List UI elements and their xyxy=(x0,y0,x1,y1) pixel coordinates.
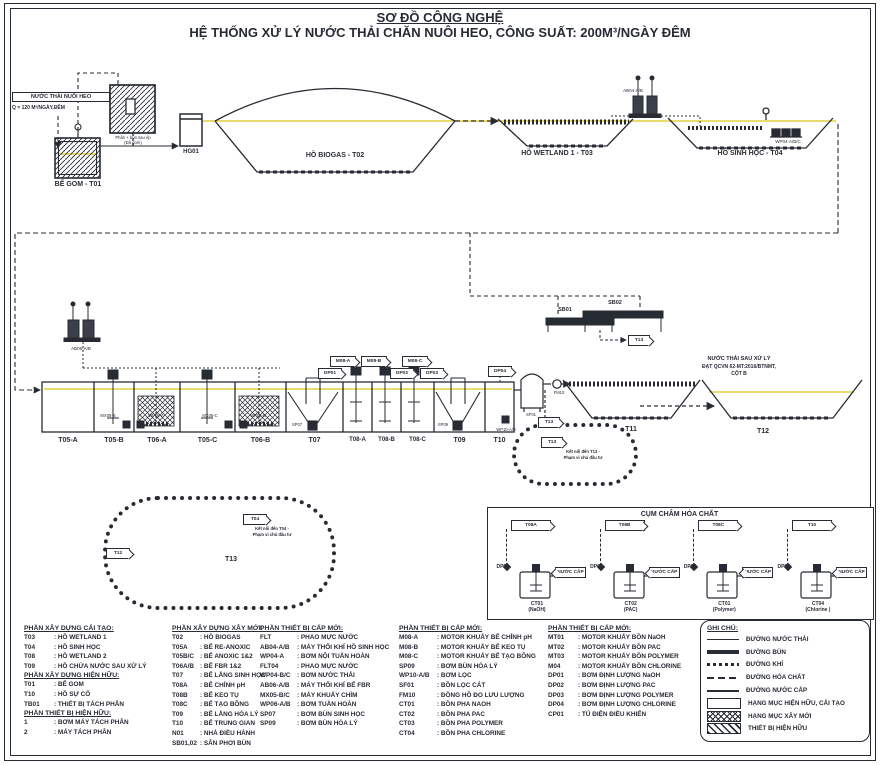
legend-key-row: THIẾT BỊ HIỆN HỮU xyxy=(707,723,863,736)
legend-key-row: ĐƯỜNG NƯỚC CẤP xyxy=(707,684,863,697)
water-supply-flag: NƯỚC CẤP xyxy=(836,567,867,578)
legend-row: MT03: MOTOR KHUẤY BỒN POLYMER xyxy=(548,652,698,662)
t13-note-2: Phạm vi chủ đầu tư xyxy=(232,533,312,538)
legend-row: M08-A: MOTOR KHUẤY BỂ CHỈNH pH xyxy=(399,633,546,643)
tank-label-t06a: T06-A xyxy=(134,437,180,445)
legend-key-row: HẠNG MỤC HIỆN HỮU, CẢI TẠO xyxy=(707,697,863,710)
legend-row: MT02: MOTOR KHUẤY BỒN PAC xyxy=(548,643,698,653)
legend-row: T08C: BỂ TẠO BÔNG xyxy=(172,700,258,710)
legend-column-5: PHẦN THIẾT BỊ CẤP MỚI: MT01: MOTOR KHUẤY… xyxy=(548,624,698,719)
sinh-hoc-pond xyxy=(668,108,833,148)
legend-row: DP04: BƠM ĐỊNH LƯỢNG CHLORINE xyxy=(548,700,698,710)
ab04-blowers xyxy=(610,76,700,126)
water-level-lines xyxy=(44,121,853,553)
chemical-dosing-line xyxy=(600,529,601,566)
t13-outlet-flag: T04 xyxy=(243,514,267,525)
tank-label-t05a: T05-A xyxy=(42,437,94,445)
legend-row: CP01: TỦ ĐIỆN ĐIỀU KHIỂN xyxy=(548,710,698,720)
wp04-label: WP04-A/B/C xyxy=(768,139,808,144)
flag-dp04: DP04 xyxy=(488,366,512,377)
legend-row: MX05-B/C: MÁY KHUẤY CHÌM xyxy=(260,691,396,701)
station-target-flag: T08B xyxy=(605,520,645,531)
t11-label: T11 xyxy=(610,426,652,434)
legend-rows: FLT: PHAO MỰC NƯỚCAB04-A/B: MÁY THỔI KHÍ… xyxy=(260,633,396,729)
legend-rows: T02: HỒ BIOGAST05A: BỂ RE-ANOXICT05B/C: … xyxy=(172,633,258,748)
flag-m08c: M08-C xyxy=(402,356,428,367)
flag-dp03: DP03 xyxy=(420,368,444,379)
process-flow-sheet: SƠ ĐỒ CÔNG NGHỆ HỆ THỐNG XỬ LÝ NƯỚC THẢI… xyxy=(0,0,880,765)
scope-cloud-t13 xyxy=(103,496,336,610)
effluent-note-2: ĐẠT QCVN 62-MT:2016/BTNMT, xyxy=(672,365,806,371)
legend-column-4: PHẦN THIẾT BỊ CẤP MỚI: M08-A: MOTOR KHUẤ… xyxy=(399,624,546,739)
flag-dp01: DP01 xyxy=(318,368,342,379)
flag-m08a: M08-A xyxy=(330,356,356,367)
tank-label-t07: T07 xyxy=(286,437,343,445)
legend-key-row: ĐƯỜNG HÓA CHẤT xyxy=(707,671,863,684)
chem-station: T08A DP01 NƯỚC CẤP CT01 (NaOH) xyxy=(493,520,585,616)
legend-swatch xyxy=(707,698,741,709)
legend-rows: MT01: MOTOR KHUẤY BỒN NaOHMT02: MOTOR KH… xyxy=(548,633,698,719)
legend-key-row: ĐƯỜNG KHÍ xyxy=(707,659,863,672)
legend-row: WP10-A/B: BƠM LỌC xyxy=(399,671,546,681)
legend-row: T08A: BỂ CHỈNH pH xyxy=(172,681,258,691)
chemical-stations: T08A DP01 NƯỚC CẤP CT01 (NaOH) T08B DP02 xyxy=(493,520,866,616)
chemical-dosing-line xyxy=(693,529,694,566)
return-line xyxy=(15,124,838,390)
chemical-tank-icon xyxy=(704,564,744,600)
tank-label-t08c: T08-C xyxy=(401,437,434,444)
tank-label-t10: T10 xyxy=(485,437,514,445)
small-cloud-flag-1: T13 xyxy=(538,417,560,428)
legend-row: SP09: BƠM BÙN HÓA LÝ xyxy=(399,662,546,672)
hg01-unit xyxy=(180,114,202,146)
legend-key-label: ĐƯỜNG BÙN xyxy=(746,649,786,656)
legend-key-row: ĐƯỜNG BÙN xyxy=(707,646,863,659)
chemical-dosing-line xyxy=(787,529,788,566)
legend-key-label: ĐƯỜNG NƯỚC THẢI xyxy=(746,636,808,643)
legend-swatch xyxy=(707,650,739,654)
legend-swatch xyxy=(707,723,741,734)
legend-row: T06A/B: BỂ FBR 1&2 xyxy=(172,662,258,672)
ab04-label: AB04-A/B xyxy=(616,88,650,93)
wetland1-pond xyxy=(455,119,633,146)
influent-flow: Q = 120 M³/NGÀY.ĐÊM xyxy=(12,106,108,112)
legend-column-2: PHẦN XÂY DỰNG XÂY MỚI: T02: HỒ BIOGAST05… xyxy=(172,624,258,748)
legend-row: AB06-A/B: MÁY THỔI KHÍ BỂ FBR xyxy=(260,681,396,691)
legend-key-label: HẠNG MỤC HIỆN HỮU, CẢI TẠO xyxy=(748,700,845,707)
legend-row: CT02: BỒN PHA PAC xyxy=(399,710,546,720)
effluent-note-3: CỘT B xyxy=(672,372,806,378)
legend-row: CT04: BỒN PHA CHLORINE xyxy=(399,729,546,739)
wetland1-label: HỒ WETLAND 1 - T03 xyxy=(507,150,607,158)
chem-station: T08B DP02 NƯỚC CẤP CT02 (PAC) xyxy=(587,520,679,616)
legend-heading: PHẦN THIẾT BỊ HIỆN HỮU: xyxy=(24,710,170,717)
legend-heading: PHẦN XÂY DỰNG CẢI TẠO: xyxy=(24,625,170,632)
t13-label: T13 xyxy=(206,556,256,564)
tank-label-t05c: T05-C xyxy=(180,437,235,445)
fm10-label: FM10 xyxy=(548,391,570,396)
legend-key-label: ĐƯỜNG HÓA CHẤT xyxy=(746,674,805,681)
tank-label-t06b: T06-B xyxy=(235,437,286,445)
chem-station: T10 DP04 NƯỚC CẤP CT04 (Chlorine ) xyxy=(774,520,866,616)
flag-m08b: M08-B xyxy=(361,356,387,367)
legend-row: T09: HỒ CHỨA NƯỚC SAU XỬ LÝ xyxy=(24,662,170,672)
legend-swatch xyxy=(707,663,739,666)
notes-rows: ĐƯỜNG NƯỚC THẢI ĐƯỜNG BÙN ĐƯỜNG KHÍ ĐƯỜN… xyxy=(707,633,863,735)
t12-label: T12 xyxy=(742,428,784,436)
mx05b-label: MX05-B xyxy=(94,414,122,419)
legend-swatch xyxy=(707,711,741,722)
legend-key-label: THIẾT BỊ HIỆN HỮU xyxy=(748,725,807,732)
legend-key-row: ĐƯỜNG NƯỚC THẢI xyxy=(707,633,863,646)
legend-row: WP04-A: BƠM NỘI TUẦN HOÀN xyxy=(260,652,396,662)
small-cloud-note-2: Phạm vi chủ đầu tư xyxy=(538,456,628,461)
legend-column-1: PHẦN XÂY DỰNG CẢI TẠO: T03: HỒ WETLAND 1… xyxy=(24,624,170,737)
legend-row: T10: BỂ TRUNG GIAN xyxy=(172,719,258,729)
legend-column-3: PHẦN THIẾT BỊ CẤP MỚI: FLT: PHAO MỰC NƯỚ… xyxy=(260,624,396,729)
legend-row: T03: HỒ WETLAND 1 xyxy=(24,633,170,643)
chemical-dosing-line xyxy=(506,529,507,566)
legend-row: DP02: BƠM ĐỊNH LƯỢNG PAC xyxy=(548,681,698,691)
legend-row: 2: MÁY TÁCH PHÂN xyxy=(24,728,170,738)
legend-row: MT01: MOTOR KHUẤY BỒN NaOH xyxy=(548,633,698,643)
chemical-tank-icon xyxy=(611,564,651,600)
legend-heading: PHẦN XÂY DỰNG XÂY MỚI: xyxy=(172,625,258,632)
legend-row: T02: HỒ BIOGAS xyxy=(172,633,258,643)
legend-row: FM10: ĐỒNG HỒ ĐO LƯU LƯỢNG xyxy=(399,691,546,701)
chem-tank-chemical: (Polymer) xyxy=(694,608,754,614)
effluent-note-1: NƯỚC THẢI SAU XỬ LÝ xyxy=(672,356,806,362)
station-target-flag: T08A xyxy=(511,520,551,531)
legend-row: FLT04: PHAO MỰC NƯỚC xyxy=(260,662,396,672)
chemical-box-title: CỤM CHÂM HÓA CHẤT xyxy=(487,511,872,519)
wp10-label: WP10-A/B xyxy=(488,428,524,433)
notes-box: GHI CHÚ: ĐƯỜNG NƯỚC THẢI ĐƯỜNG BÙN ĐƯỜNG… xyxy=(700,620,870,742)
legend-row: SB01,02: SÂN PHƠI BÙN xyxy=(172,739,258,749)
legend-rows: 1: BƠM MÁY TÁCH PHÂN2: MÁY TÁCH PHÂN xyxy=(24,718,170,737)
legend-row: M08-C: MOTOR KHUẤY BỂ TẠO BÔNG xyxy=(399,652,546,662)
wp06b-label: WP06-B xyxy=(244,414,272,419)
legend-key-label: ĐƯỜNG KHÍ xyxy=(746,661,783,668)
water-supply-flag: NƯỚC CẤP xyxy=(555,567,586,578)
separator-note-2: (Đã gom) xyxy=(104,141,162,146)
legend-row: FLT: PHAO MỰC NƯỚC xyxy=(260,633,396,643)
legend-row: T09: BỂ LẮNG HÓA LÝ xyxy=(172,710,258,720)
legend-key-label: HẠNG MỤC XÂY MỚI xyxy=(748,713,811,720)
legend-key-label: ĐƯỜNG NƯỚC CẤP xyxy=(746,687,807,694)
legend-row: AB04-A/B: MÁY THỔI KHÍ HỒ SINH HỌC xyxy=(260,643,396,653)
legend-heading: PHẦN XÂY DỰNG HIỆN HỮU: xyxy=(24,672,170,679)
legend-swatch xyxy=(707,677,739,679)
sp09-label: SP09 xyxy=(434,423,452,428)
wp06a-label: WP06-A xyxy=(142,414,170,419)
sb-outlet-flag: T13 xyxy=(628,335,650,346)
legend-row: T07: BỂ LẮNG SINH HỌC xyxy=(172,671,258,681)
chemical-tank-icon xyxy=(517,564,557,600)
legend-row: T04: HỒ SINH HỌC xyxy=(24,643,170,653)
small-cloud-flag-2: T13 xyxy=(541,437,563,448)
legend-row: CT03: BỒN PHA POLYMER xyxy=(399,719,546,729)
water-supply-flag: NƯỚC CẤP xyxy=(649,567,680,578)
chem-station: T08C DP03 NƯỚC CẤP CT01 (Polymer) xyxy=(680,520,772,616)
legend-swatch xyxy=(707,639,739,640)
sinh-hoc-label: HỒ SINH HỌC - T04 xyxy=(700,150,800,158)
legend-row: T01: BỂ GOM xyxy=(24,680,170,690)
legend-key-row: HẠNG MỤC XÂY MỚI xyxy=(707,710,863,723)
legend-row: T10: HỒ SỰ CỐ xyxy=(24,690,170,700)
station-target-flag: T10 xyxy=(792,520,832,531)
legend-row: T05B/C: BỂ ANOXIC 1&2 xyxy=(172,652,258,662)
tank-label-t05b: T05-B xyxy=(94,437,134,445)
tank-label-t08b: T08-B xyxy=(372,437,401,444)
legend-row: M04: MOTOR KHUẤY BỒN CHLORINE xyxy=(548,662,698,672)
mx05c-label: MX05-C xyxy=(196,414,224,419)
station-target-flag: T08C xyxy=(698,520,738,531)
legend-row: N01: NHÀ ĐIỀU HÀNH xyxy=(172,729,258,739)
legend-row: CT01: BỒN PHA NAOH xyxy=(399,700,546,710)
hg01-label: HG01 xyxy=(178,149,204,156)
sp07-label: SP07 xyxy=(288,423,306,428)
ab06-blowers xyxy=(64,302,100,368)
legend-rows: M08-A: MOTOR KHUẤY BỂ CHỈNH pHM08-B: MOT… xyxy=(399,633,546,739)
sb02-label: SB02 xyxy=(598,300,632,306)
legend-row: M08-B: MOTOR KHUẤY BỂ KEO TỤ xyxy=(399,643,546,653)
legend-heading: PHẦN THIẾT BỊ CẤP MỚI: xyxy=(260,625,396,632)
legend-row: SF01: BỒN LỌC CÁT xyxy=(399,681,546,691)
chemical-tank-icon xyxy=(798,564,838,600)
legend-heading: PHẦN THIẾT BỊ CẤP MỚI: xyxy=(548,625,698,632)
legend-row: T08: HỒ WETLAND 2 xyxy=(24,652,170,662)
legend-row: T08B: BỂ KEO TỤ xyxy=(172,691,258,701)
legend-row: 1: BƠM MÁY TÁCH PHÂN xyxy=(24,718,170,728)
water-supply-flag: NƯỚC CẤP xyxy=(742,567,773,578)
legend-row: WP04-B/C: BƠM NƯỚC THẢI xyxy=(260,671,396,681)
legend-row: DP01: BƠM ĐỊNH LƯỢNG NaOH xyxy=(548,671,698,681)
flag-dp02: DP02 xyxy=(390,368,414,379)
legend-row: SP07: BƠM BÙN SINH HỌC xyxy=(260,710,396,720)
legend-row: WP06-A/B: BƠM TUẦN HOÀN xyxy=(260,700,396,710)
influent-note: NƯỚC THẢI NUÔI HEO xyxy=(12,92,110,102)
tank-label-t09: T09 xyxy=(434,437,485,445)
t13-inlet-flag: T12 xyxy=(106,548,130,559)
legend-row: SP09: BƠM BÙN HÓA LÝ xyxy=(260,719,396,729)
be-gom-label: BỂ GOM - T01 xyxy=(45,181,111,189)
chem-tank-chemical: (NaOH) xyxy=(507,608,567,614)
notes-heading: GHI CHÚ: xyxy=(707,625,863,632)
legend-row: TB01: THIẾT BỊ TÁCH PHÂN xyxy=(24,700,170,710)
legend-heading: PHẦN THIẾT BỊ CẤP MỚI: xyxy=(399,625,546,632)
chem-tank-chemical: (Chlorine ) xyxy=(788,608,848,614)
legend-row: T05A: BỂ RE-ANOXIC xyxy=(172,643,258,653)
legend-rows: T01: BỂ GOMT10: HỒ SỰ CỐTB01: THIẾT BỊ T… xyxy=(24,680,170,709)
t11-t12-ponds xyxy=(563,380,862,418)
tank-label-t08a: T08-A xyxy=(343,437,372,444)
biogas-label: HỒ BIOGAS - T02 xyxy=(288,152,382,160)
legend-row: DP03: BƠM ĐỊNH LƯỢNG POLYMER xyxy=(548,691,698,701)
sb01-label: SB01 xyxy=(548,307,582,313)
legend-swatch xyxy=(707,690,739,692)
legend-rows: T03: HỒ WETLAND 1T04: HỒ SINH HỌCT08: HỒ… xyxy=(24,633,170,671)
chem-tank-chemical: (PAC) xyxy=(601,608,661,614)
ab06-label: AB06-A/B xyxy=(56,346,106,351)
